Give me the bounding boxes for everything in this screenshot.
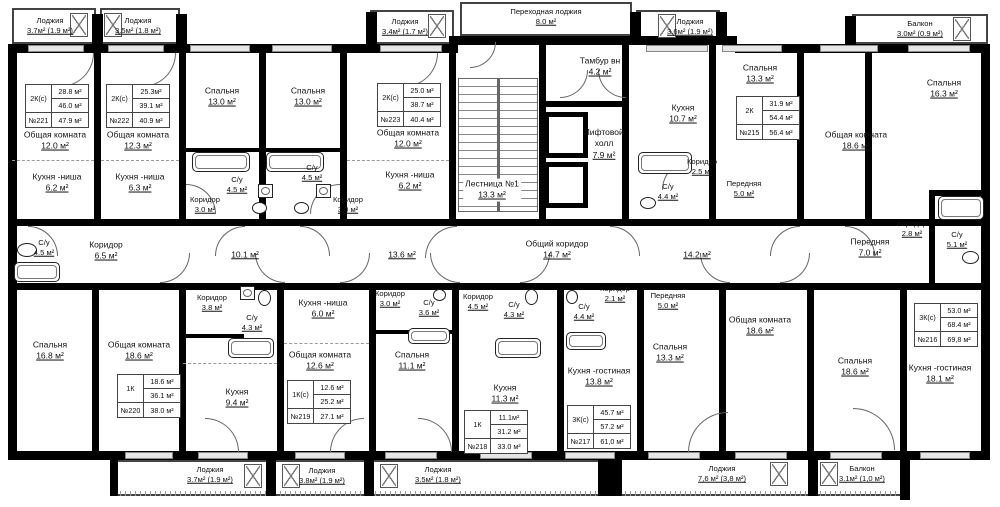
- wall: [266, 460, 276, 496]
- room-label: Спальня13.0 м²: [291, 86, 325, 109]
- room-label: Общая комната18.6 м²: [729, 315, 791, 338]
- wall: [900, 456, 910, 500]
- room-label: Передняя5.0 м²: [727, 179, 762, 200]
- loggia-label: Лоджия3.5м² (1.8 м²): [415, 465, 461, 486]
- room-label: С/у4.5 м²: [302, 163, 322, 184]
- window: [830, 452, 882, 459]
- wall: [8, 283, 990, 290]
- washing-machine: [258, 184, 273, 198]
- apt-area: 25.0 м²: [404, 84, 440, 98]
- apt-type: 3К(с): [915, 304, 941, 332]
- toilet: [252, 202, 267, 214]
- room-label: Передняя7.0 м²: [851, 237, 890, 260]
- apt-total: 38.0 м²: [144, 403, 180, 417]
- window: [28, 45, 84, 52]
- apt-area: 36.1 м²: [144, 389, 180, 403]
- wall: [364, 460, 374, 496]
- room-label: Спальня13.0 м²: [205, 86, 239, 109]
- room-label: Общая комната12.0 м²: [24, 130, 86, 153]
- wall: [94, 44, 101, 226]
- room-label: Коридор3.0 м²: [375, 289, 405, 310]
- loggia-label: Лоджия3.5м² (1.8 м²): [115, 16, 161, 37]
- room-label: Общая комната12.0 м²: [377, 128, 439, 151]
- toilet: [294, 202, 309, 214]
- room-label: Общая комната12.6 м²: [289, 350, 351, 373]
- apartment-info-table: 2К(с)25.0 м²38.7 м²№22340.4 м²: [377, 83, 441, 127]
- door-arc: [255, 253, 285, 283]
- dashed-boundary: [284, 343, 369, 344]
- room-label: Кухня -гостиная13.8 м²: [568, 366, 631, 389]
- wall: [8, 219, 990, 226]
- apt-number: №219: [288, 409, 314, 423]
- room-label: Кухня -ниша6.3 м²: [116, 172, 165, 195]
- washing-machine: [240, 286, 255, 300]
- wall: [259, 44, 266, 226]
- wall: [369, 285, 376, 453]
- bathtub: [938, 196, 984, 220]
- door-arc: [610, 226, 640, 256]
- wall: [179, 44, 186, 226]
- door-arc: [205, 418, 239, 452]
- room-label: Коридор3.8 м²: [197, 293, 227, 314]
- apt-total: 56.4 м²: [763, 125, 799, 139]
- balcony-label: Балкон3.0м² (0.9 м²): [897, 19, 943, 40]
- door-arc: [770, 226, 800, 256]
- wall: [176, 14, 187, 44]
- apt-number: №222: [107, 113, 133, 127]
- room-label: Спальня16.8 м²: [33, 340, 67, 363]
- apt-number: №215: [737, 125, 763, 139]
- bathtub: [192, 152, 250, 172]
- wall: [845, 16, 856, 44]
- window: [820, 45, 878, 52]
- washing-machine: [316, 184, 331, 198]
- door-arc: [470, 42, 496, 68]
- window: [565, 452, 615, 459]
- door-arc: [688, 412, 728, 452]
- bathtub: [14, 262, 60, 282]
- apartment-info-table: 2К(с)28.8 м²46.0 м²№22147.9 м²: [25, 84, 89, 128]
- apt-type: 1К(с): [288, 381, 314, 409]
- room-label: Спальня11.1 м²: [395, 350, 429, 373]
- apt-type: 2К(с): [378, 84, 404, 112]
- door-arc: [160, 253, 190, 283]
- wall: [709, 44, 716, 226]
- window-icon: [428, 14, 446, 38]
- room-label: С/у4.4 м²: [658, 182, 678, 203]
- room-label: Коридор3.0 м²: [190, 195, 220, 216]
- apartment-info-table: 2К(с)25.3м²39.1 м²№22240.9 м²: [106, 84, 170, 128]
- window: [190, 45, 250, 52]
- room-label: Коридор3.0 м²: [333, 195, 363, 216]
- wall: [179, 285, 186, 453]
- room-label: С/у3.6 м²: [419, 298, 439, 319]
- apt-area: 57.2 м²: [594, 420, 630, 434]
- door-arc: [418, 418, 452, 452]
- room-label: Кухня -ниша6.2 м²: [33, 172, 82, 195]
- apt-total: 47.9 м²: [52, 113, 88, 127]
- hatching: [620, 491, 904, 496]
- wall: [366, 12, 377, 44]
- apt-type: 1К: [118, 375, 144, 403]
- loggia-label: Лоджия3.7м² (1.9 м²): [187, 465, 233, 486]
- room-label: Общая комната12.3 м²: [107, 130, 169, 153]
- apt-area: 12.6 м²: [314, 381, 350, 395]
- apt-area: 53.0 м²: [941, 304, 977, 318]
- wall: [637, 285, 644, 453]
- room-label: 14.2 м²: [683, 249, 711, 260]
- wall: [277, 285, 284, 453]
- room-label: С/у4.5 м²: [227, 175, 247, 196]
- room-label: С/у4.4 м²: [574, 302, 594, 323]
- window-icon: [380, 464, 398, 488]
- room-label: С/у4.5 м²: [34, 238, 54, 259]
- room-label: Общий коридор14.7 м²: [526, 239, 589, 262]
- door-arc: [853, 408, 895, 450]
- apt-type: 3К(с): [568, 406, 594, 434]
- loggia-label: Лоджия3.4м² (1.7 м²): [382, 17, 428, 38]
- room-label: Кухня -ниша6.0 м²: [299, 298, 348, 321]
- wall: [557, 285, 564, 453]
- bathtub: [408, 328, 450, 344]
- wall: [455, 36, 737, 45]
- wall: [92, 14, 103, 44]
- wall: [543, 101, 627, 107]
- room-label: Лестница №113.3 м²: [463, 179, 521, 202]
- window: [648, 452, 700, 459]
- window: [295, 452, 345, 459]
- apt-total: 69,8 м²: [941, 332, 977, 346]
- apt-area: 18.6 м²: [144, 375, 180, 389]
- apt-area: 25.3м²: [133, 85, 169, 99]
- apt-area: 31.2 м²: [491, 425, 527, 439]
- wall: [716, 12, 727, 44]
- door-arc: [430, 253, 460, 283]
- apt-type: 1К: [465, 411, 491, 439]
- apartment-info-table: 1К11.1м²31.2 м²№21833.0 м²: [464, 410, 528, 454]
- loggia-label: Лоджия7,6 м² (3,8 м²): [698, 464, 746, 485]
- bathtub: [495, 338, 541, 358]
- toilet: [962, 251, 979, 264]
- apartment-info-table: 1К18.6 м²36.1 м²№22038.0 м²: [117, 374, 181, 418]
- room-label: Общая комната18.6 м²: [108, 340, 170, 363]
- window: [646, 45, 708, 52]
- room-label: Спальня18.6 м²: [838, 356, 872, 379]
- window: [272, 45, 332, 52]
- room-label: Коридор6.5 м²: [89, 240, 123, 263]
- apt-area: 25.2 м²: [314, 395, 350, 409]
- apt-number: №221: [26, 113, 52, 127]
- room-label: С/у5.1 м²: [947, 230, 967, 251]
- room-label: Общая комната18.6 м²: [825, 130, 887, 153]
- wall: [449, 36, 456, 226]
- dashed-boundary: [347, 160, 449, 161]
- toilet: [640, 197, 656, 209]
- apt-total: 27.1 м²: [314, 409, 350, 423]
- window: [920, 452, 970, 459]
- window: [125, 452, 173, 459]
- wall: [630, 12, 641, 44]
- balcony-label: Балкон3.1м² (1,0 м²): [839, 464, 885, 485]
- apt-area: 54.4 м²: [763, 111, 799, 125]
- dashed-boundary: [101, 160, 179, 161]
- room-label: 13.6 м²: [388, 249, 416, 260]
- hatching: [115, 491, 600, 496]
- apartment-info-table: 3К(с)45.7 м²57.2 м²№21761,0 м²: [567, 405, 631, 449]
- room-label: Передняя5.0 м²: [651, 291, 686, 312]
- wall: [929, 190, 935, 285]
- apartment-info-table: 2К31.9 м²54.4 м²№21556.4 м²: [736, 96, 800, 140]
- window: [908, 45, 970, 52]
- apt-type: 2К(с): [107, 85, 133, 113]
- apt-number: №216: [915, 332, 941, 346]
- window-icon: [820, 462, 838, 486]
- window: [735, 452, 787, 459]
- room-label: Лифтовой холл7.9 м²: [582, 127, 626, 161]
- apt-number: №223: [378, 112, 404, 126]
- window: [722, 45, 782, 52]
- room-label: Коридор4.5 м²: [463, 292, 493, 313]
- wall: [807, 285, 814, 453]
- door-arc: [142, 53, 176, 87]
- window: [380, 45, 442, 52]
- apartment-info-table: 1К(с)12.6 м²25.2 м²№21927.1 м²: [287, 380, 351, 424]
- room-label: Кухня -гостиная18.1 м²: [909, 363, 972, 386]
- door-arc: [404, 53, 438, 87]
- apt-area: 46.0 м²: [52, 99, 88, 113]
- apt-type: 2К: [737, 97, 763, 125]
- apt-area: 45.7 м²: [594, 406, 630, 420]
- window: [108, 45, 164, 52]
- apt-area: 68.4 м²: [941, 318, 977, 332]
- apt-total: 40.4 м²: [404, 112, 440, 126]
- wall: [110, 460, 118, 496]
- apt-total: 40.9 м²: [133, 113, 169, 127]
- bathtub: [638, 152, 692, 174]
- bathtub: [228, 338, 274, 358]
- room-label: Коридор2.8 м²: [897, 219, 927, 240]
- apt-number: №220: [118, 403, 144, 417]
- room-label: С/у4.3 м²: [242, 313, 262, 334]
- bathtub: [566, 332, 606, 350]
- room-label: Коридор2.5 м²: [687, 157, 717, 178]
- dashed-boundary: [183, 363, 277, 364]
- window-icon: [770, 462, 788, 486]
- wall: [598, 456, 622, 496]
- apt-area: 31.9 м²: [763, 97, 799, 111]
- loggia-label: Лоджия3.8м² (1.9 м²): [299, 466, 345, 487]
- room-label: Кухня9.4 м²: [226, 387, 249, 410]
- door-arc: [340, 253, 370, 283]
- apt-area: 28.8 м²: [52, 85, 88, 99]
- room-label: 10.1 м²: [231, 249, 259, 260]
- apt-area: 11.1м²: [491, 411, 527, 425]
- apartment-info-table: 3К(с)53.0 м²68.4 м²№21669,8 м²: [914, 303, 978, 347]
- room-label: С/у4.3 м²: [504, 300, 524, 321]
- room-label: Коридор2.1 м²: [600, 284, 630, 305]
- apt-total: 61,0 м²: [594, 434, 630, 448]
- wall: [92, 285, 99, 453]
- apt-number: №217: [568, 434, 594, 448]
- loggia-label: Переходная лоджия8.0 м²: [510, 7, 581, 28]
- wall: [8, 44, 17, 460]
- window-icon: [953, 17, 971, 41]
- room-label: Кухня -ниша6.2 м²: [386, 170, 435, 193]
- room-label: Спальня13.3 м²: [653, 342, 687, 365]
- toilet: [258, 290, 271, 306]
- door-arc: [300, 226, 330, 256]
- floor-plan: Лоджия3.7м² (1.9 м²) Лоджия3.5м² (1.8 м²…: [0, 0, 1000, 507]
- apt-number: №218: [465, 439, 491, 453]
- wall: [981, 44, 990, 460]
- room-label: Спальня13.3 м²: [743, 63, 777, 86]
- wall: [808, 456, 818, 496]
- apt-area: 39.1 м²: [133, 99, 169, 113]
- window: [198, 452, 248, 459]
- room-label: Кухня11.3 м²: [492, 383, 519, 406]
- wall: [452, 285, 459, 453]
- apt-type: 2К(с): [26, 85, 52, 113]
- loggia-label: Лоджия3.6м² (1.9 м²): [667, 17, 713, 38]
- loggia-label: Лоджия3.7м² (1.9 м²): [27, 16, 73, 37]
- room-label: Спальня16.3 м²: [927, 78, 961, 101]
- window-icon: [282, 464, 300, 488]
- room-label: Тамбур вн4.2 м²: [580, 56, 620, 79]
- apt-area: 38.7 м²: [404, 98, 440, 112]
- window-icon: [244, 464, 262, 488]
- elevator-shaft: [544, 162, 588, 208]
- door-arc: [60, 53, 94, 87]
- wall: [900, 285, 907, 453]
- toilet: [525, 289, 538, 305]
- dashed-boundary: [12, 160, 94, 161]
- room-label: Кухня10.7 м²: [669, 103, 697, 126]
- door-arc: [780, 253, 810, 283]
- apt-total: 33.0 м²: [491, 439, 527, 453]
- window: [385, 452, 437, 459]
